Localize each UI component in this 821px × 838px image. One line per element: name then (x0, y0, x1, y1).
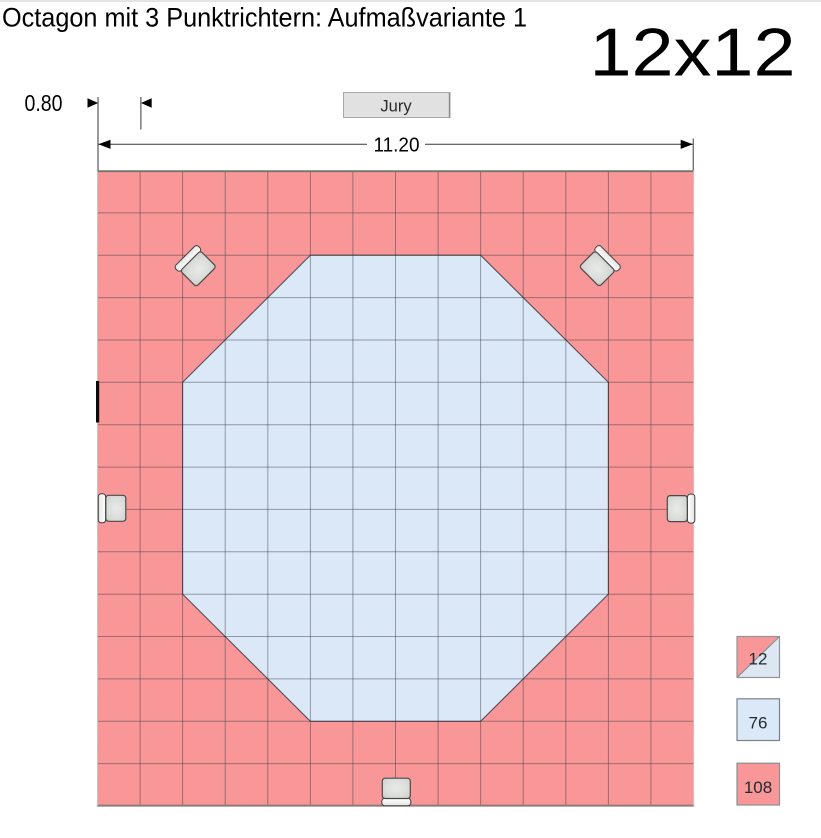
svg-text:12: 12 (749, 650, 768, 669)
svg-text:Octagon mit 3 Punktrichtern: A: Octagon mit 3 Punktrichtern: Aufmaßvaria… (2, 3, 527, 33)
svg-text:108: 108 (744, 778, 772, 797)
svg-text:0.80: 0.80 (25, 90, 63, 116)
svg-text:12x12: 12x12 (590, 15, 796, 91)
svg-text:Jury: Jury (380, 98, 412, 116)
svg-text:76: 76 (749, 714, 768, 733)
svg-text:11.20: 11.20 (374, 134, 420, 156)
